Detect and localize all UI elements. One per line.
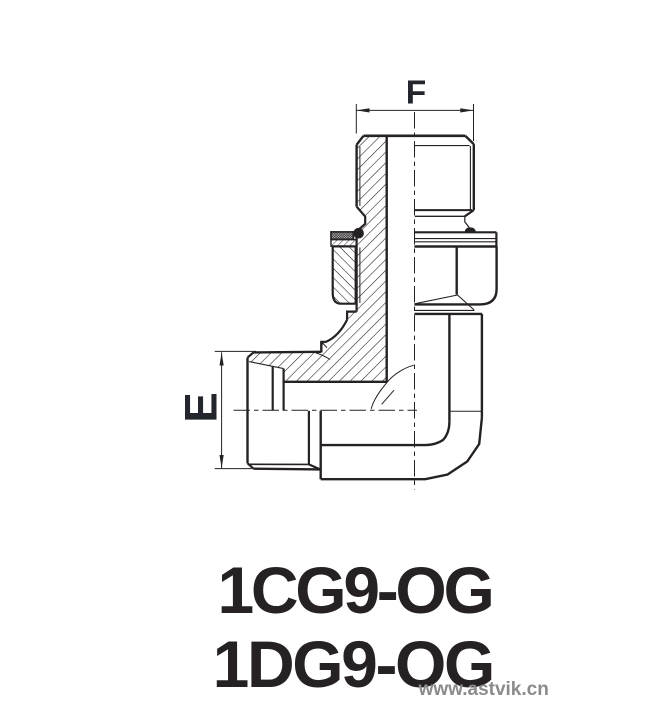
svg-text:1CG9-OG: 1CG9-OG — [218, 553, 492, 627]
svg-text:E: E — [176, 392, 227, 422]
svg-text:www.astvik.cn: www.astvik.cn — [418, 679, 549, 700]
svg-text:F: F — [406, 75, 426, 112]
